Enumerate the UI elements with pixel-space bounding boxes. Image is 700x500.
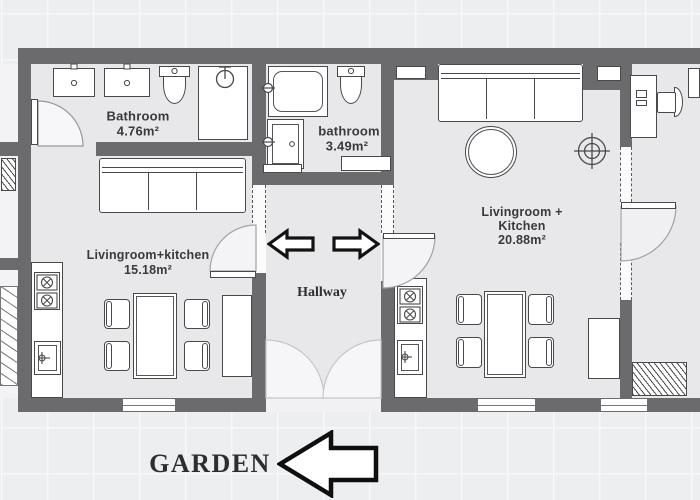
garden-arrow-icon: [277, 430, 379, 498]
hallway-arrow-left-icon: [267, 228, 315, 260]
chair-icon: [456, 294, 482, 325]
desk: [630, 75, 657, 138]
wall-sliver-stub: [0, 258, 18, 270]
wall-bath-left-stub: [0, 142, 31, 156]
wall-hall-right-lower: [381, 281, 394, 412]
opening-hall-to-left-apartment: [252, 185, 266, 233]
niche-window-1: [396, 66, 426, 79]
garden-label: GARDEN: [149, 449, 271, 479]
room-area-living-right: 20.88m²: [498, 233, 546, 247]
left-apartment-door-leaf: [210, 271, 256, 278]
kitchen-sink-icon: [397, 340, 423, 375]
opening-partition-lower: [620, 243, 632, 300]
window-left: [123, 399, 175, 411]
sink-icon: [267, 119, 304, 169]
stairs-icon: [0, 286, 18, 386]
chair-icon: [104, 341, 130, 371]
opening-hall-to-right-lower: [381, 233, 394, 281]
radiator-icon: [263, 164, 302, 173]
wall-hall-left-lower: [252, 273, 266, 412]
sideboard: [222, 295, 252, 377]
bathroom-door-leaf: [31, 99, 38, 145]
room-area-bathroom-middle: 3.49m²: [326, 139, 368, 154]
niche-window-2: [597, 66, 621, 81]
wall-top: [18, 48, 700, 64]
sink-icon: [104, 68, 150, 97]
sofa-icon: [438, 64, 583, 122]
hallway-arrow-right-icon: [332, 228, 380, 260]
room-area-living-left: 15.18m²: [124, 263, 172, 277]
chair-icon: [184, 299, 210, 329]
sideboard: [588, 318, 620, 379]
kitchen-sink-icon: [34, 341, 61, 375]
room-label-living-right-2: Kitchen: [498, 219, 545, 233]
room-label-living-left: Livingroom+kitchen: [87, 248, 210, 262]
window-right-1: [478, 399, 535, 411]
bathtub-icon: [268, 66, 328, 117]
chair-icon: [456, 337, 482, 368]
computer-icon: [636, 90, 647, 98]
wall-midbath-bottom: [252, 172, 394, 185]
sofa-icon: [99, 158, 246, 213]
opening-hall-to-right-apartment: [381, 185, 394, 233]
wardrobe: [688, 68, 700, 98]
computer-icon: [636, 100, 647, 106]
room-label-bathroom-middle: bathroom: [318, 124, 380, 139]
floor-plan: Bathroom 4.76m² bathroom 3.49m² Livingro…: [0, 0, 700, 500]
wall-partition-lower: [620, 300, 632, 398]
wall-bath-bottom: [96, 142, 266, 156]
radiator-icon: [1, 158, 16, 191]
wall-bottom-right: [381, 398, 700, 412]
sliding-door-panel: [341, 156, 391, 171]
right-apartment-door-leaf: [383, 233, 435, 239]
round-table: [465, 126, 517, 178]
chair-icon: [528, 294, 554, 325]
dining-table: [484, 291, 526, 378]
opening-hall-to-left-lower: [252, 233, 266, 273]
sink-icon: [53, 68, 95, 97]
desk-chair-seat-icon: [657, 92, 676, 113]
room-area-bathroom-left: 4.76m²: [117, 124, 159, 139]
window-right-2: [601, 399, 647, 411]
room-label-living-right-1: Livingroom +: [481, 205, 562, 219]
stove-icon: [397, 286, 423, 324]
chair-icon: [528, 337, 554, 368]
stove-icon: [34, 272, 60, 310]
partition-door-leaf: [621, 202, 676, 209]
entrance-threshold: [266, 398, 381, 412]
wall-left: [18, 48, 31, 412]
room-label-hallway: Hallway: [297, 285, 347, 301]
dining-table: [133, 293, 177, 379]
radiator-icon: [632, 362, 687, 396]
chair-icon: [184, 341, 210, 371]
opening-partition-upper: [620, 147, 632, 202]
room-label-bathroom-left: Bathroom: [107, 109, 170, 124]
chair-icon: [104, 299, 130, 329]
shower-icon: [198, 66, 248, 140]
